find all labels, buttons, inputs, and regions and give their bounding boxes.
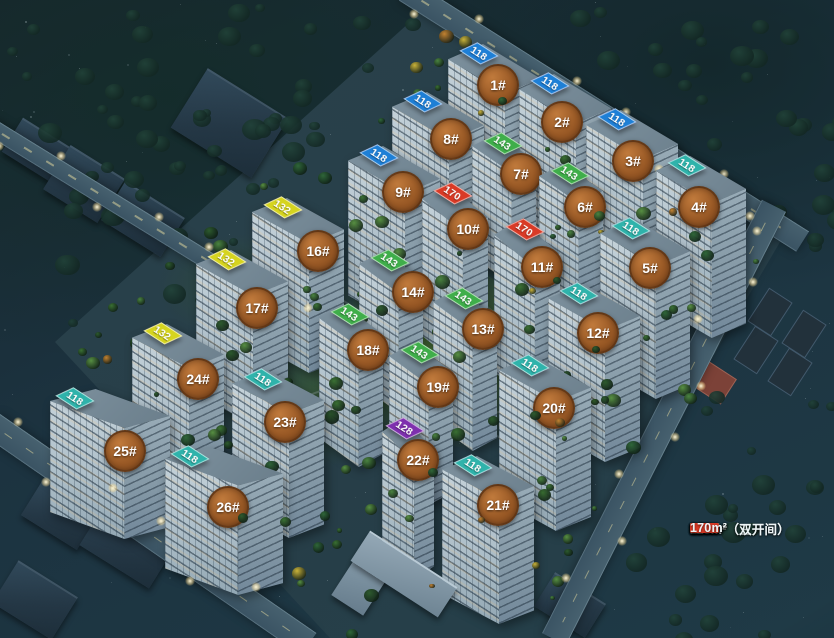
forest-tree [107, 115, 124, 129]
forest-tree [780, 29, 799, 45]
forest-tree [135, 189, 150, 202]
site-tree [320, 511, 331, 521]
star-speckle [627, 66, 628, 67]
star-speckle [635, 103, 636, 104]
forest-tree [758, 630, 770, 638]
offsite-building [0, 560, 78, 638]
forest-tree [101, 162, 114, 173]
building-number-badge: 13# [462, 308, 504, 350]
star-speckle [614, 609, 615, 610]
building-number-badge: 18# [347, 329, 389, 371]
forest-tree [126, 10, 140, 22]
star-speckle [822, 536, 823, 537]
site-tree [701, 250, 714, 262]
street-light [670, 432, 680, 442]
star-speckle [327, 580, 328, 581]
forest-tree [704, 566, 728, 586]
street-light [748, 277, 758, 287]
street-light [474, 14, 484, 24]
forest-tree [597, 51, 620, 70]
star-speckle [30, 116, 32, 118]
site-tree [515, 283, 529, 296]
site-tree [346, 629, 358, 638]
street-light [156, 516, 166, 526]
forest-tree [68, 319, 77, 327]
forest-tree [304, 23, 317, 34]
forest-tree [105, 84, 124, 100]
star-speckle [810, 388, 811, 389]
star-speckle [279, 596, 280, 597]
star-speckle [767, 74, 768, 75]
forest-tree [306, 132, 324, 147]
star-speckle [33, 111, 35, 113]
forest-tree [268, 178, 279, 187]
site-tree [435, 275, 450, 288]
street-light [303, 303, 313, 313]
site-tree [204, 227, 218, 240]
star-speckle [355, 497, 356, 498]
site-tree [137, 297, 146, 305]
site-tree [553, 277, 561, 284]
forest-tree [594, 7, 607, 18]
forest-tree [808, 400, 819, 409]
site-tree [687, 304, 696, 312]
site-tree [318, 172, 332, 184]
star-speckle [365, 492, 366, 493]
forest-tree [215, 166, 227, 176]
forest-tree [218, 27, 241, 46]
forest-tree [696, 37, 707, 47]
site-tree [453, 351, 467, 363]
forest-tree [648, 43, 664, 56]
site-tree [86, 357, 100, 369]
star-speckle [730, 627, 731, 628]
forest-tree [255, 4, 265, 12]
building-number-badge: 3# [612, 140, 654, 182]
forest-tree [700, 615, 719, 631]
forest-tree [736, 574, 754, 589]
site-tree [591, 399, 599, 406]
building-number-badge: 24# [177, 358, 219, 400]
site-tree [529, 288, 536, 294]
building-number-badge: 14# [392, 271, 434, 313]
building-number-badge: 5# [629, 247, 671, 289]
star-speckle [829, 323, 830, 324]
site-tree [478, 517, 485, 523]
forest-tree [707, 138, 722, 151]
street-light [13, 417, 23, 427]
forest-tree [139, 95, 158, 111]
site-tree [563, 534, 574, 544]
forest-tree [647, 527, 670, 547]
forest-tree [124, 171, 144, 188]
forest-tree [309, 122, 319, 131]
forest-tree [75, 68, 95, 85]
star-speckle [216, 43, 217, 44]
building-number-badge: 7# [500, 153, 542, 195]
forest-tree [22, 72, 32, 80]
street-light [696, 381, 706, 391]
site-tree [332, 540, 342, 549]
site-tree [661, 310, 672, 320]
forest-tree [696, 95, 708, 105]
star-speckle [757, 177, 758, 178]
site-tree [313, 542, 325, 553]
forest-tree [55, 255, 80, 276]
forest-tree [730, 46, 754, 66]
forest-tree [38, 123, 62, 143]
building-number-badge: 16# [297, 230, 339, 272]
site-tree [538, 489, 551, 501]
forest-tree [814, 164, 834, 182]
building-number-badge: 23# [264, 401, 306, 443]
star-speckle [68, 54, 70, 56]
site-tree [626, 441, 641, 454]
site-tree [592, 346, 600, 353]
forest-tree [701, 406, 713, 416]
street-light [56, 151, 66, 161]
star-speckle [205, 40, 206, 41]
forest-tree [807, 233, 823, 247]
forest-tree [228, 4, 250, 22]
star-speckle [180, 4, 181, 5]
star-speckle [722, 493, 724, 495]
street-light [745, 211, 755, 221]
star-speckle [595, 484, 596, 485]
site-tree [439, 30, 453, 43]
star-speckle [732, 121, 733, 122]
star-speckle [595, 2, 596, 3]
forest-tree [163, 284, 186, 303]
site-tree [592, 506, 597, 511]
site-tree [378, 118, 384, 124]
site-tree [351, 406, 360, 414]
site-tree [95, 332, 102, 339]
forest-tree [626, 553, 648, 572]
forest-tree [7, 47, 18, 56]
site-tree [388, 489, 398, 498]
site-tree [325, 410, 340, 423]
star-speckle [600, 36, 601, 37]
star-speckle [12, 394, 13, 395]
forest-tree [678, 80, 692, 92]
site-tree [530, 411, 540, 420]
star-speckle [111, 582, 112, 583]
forest-tree [709, 391, 725, 405]
site-tree [365, 504, 377, 515]
site-tree [567, 230, 576, 238]
legend-label: 170m² [690, 521, 727, 535]
site-tree [240, 342, 252, 353]
forest-tree [653, 63, 672, 79]
building-number-badge: 25# [104, 430, 146, 472]
star-speckle [743, 612, 744, 613]
forest-tree [771, 556, 791, 573]
building-number-badge: 20# [533, 387, 575, 429]
star-speckle [16, 56, 17, 57]
forest-tree [282, 142, 305, 162]
site-tree [165, 262, 174, 271]
forest-tree [741, 72, 753, 82]
building-number-badge: 9# [382, 171, 424, 213]
street-light [693, 314, 703, 324]
forest-tree [822, 123, 834, 141]
forest-tree [728, 504, 738, 512]
forest-tree [137, 58, 159, 77]
star-speckle [432, 47, 433, 48]
site-tree [643, 335, 650, 341]
forest-tree [64, 203, 82, 219]
star-speckle [808, 537, 810, 539]
site-tree [669, 208, 677, 216]
building-number-badge: 10# [447, 208, 489, 250]
building-number-badge: 19# [417, 366, 459, 408]
forest-tree [669, 614, 682, 625]
forest-tree [27, 24, 40, 35]
forest-tree [769, 500, 786, 515]
forest-tree [293, 90, 313, 107]
site-tree [601, 379, 613, 390]
star-speckle [803, 617, 804, 618]
street-light [617, 536, 627, 546]
site-tree [103, 355, 112, 363]
forest-tree [826, 402, 834, 412]
forest-tree [810, 481, 824, 493]
site-tree [238, 513, 248, 522]
star-speckle [127, 64, 129, 66]
star-speckle [229, 234, 230, 235]
forest-tree [747, 447, 756, 455]
forest-tree [174, 161, 186, 171]
site-tree [684, 393, 697, 405]
building-number-badge: 17# [236, 287, 278, 329]
forest-tree [229, 238, 238, 246]
forest-tree [776, 110, 796, 127]
aerial-masterplan-rendering: 89m²106m²118m²（三开间）118m²（双开间）128m²132m²1… [0, 0, 834, 638]
forest-tree [752, 475, 775, 494]
star-speckle [2, 110, 3, 111]
star-speckle [816, 180, 817, 181]
site-tree [428, 468, 438, 477]
star-speckle [4, 329, 6, 331]
star-speckle [402, 89, 404, 91]
forest-tree [686, 64, 702, 78]
forest-tree [203, 171, 215, 181]
forest-tree [705, 495, 728, 514]
star-speckle [25, 21, 27, 23]
forest-tree [752, 20, 768, 34]
forest-tree [207, 145, 221, 157]
forest-tree [675, 585, 696, 603]
forest-tree [249, 44, 265, 58]
site-tree [303, 286, 310, 292]
forest-tree [570, 10, 591, 28]
site-tree [451, 428, 465, 440]
star-speckle [142, 152, 143, 153]
building-number-badge: 2# [541, 101, 583, 143]
street-light [185, 576, 195, 586]
star-speckle [330, 134, 331, 135]
star-speckle [236, 221, 237, 222]
site-tree [524, 325, 534, 334]
street-light [409, 9, 419, 19]
star-speckle [805, 398, 806, 399]
forest-tree [675, 632, 693, 638]
star-speckle [812, 351, 813, 352]
forest-tree [97, 105, 108, 114]
star-speckle [126, 161, 127, 162]
forest-tree [132, 26, 153, 44]
unit-area-tag-strip: 118898989118 [61, 385, 70, 399]
forest-tree [812, 195, 834, 215]
forest-tree [353, 16, 370, 31]
residential-tower [442, 456, 534, 624]
site-tree [329, 377, 343, 390]
